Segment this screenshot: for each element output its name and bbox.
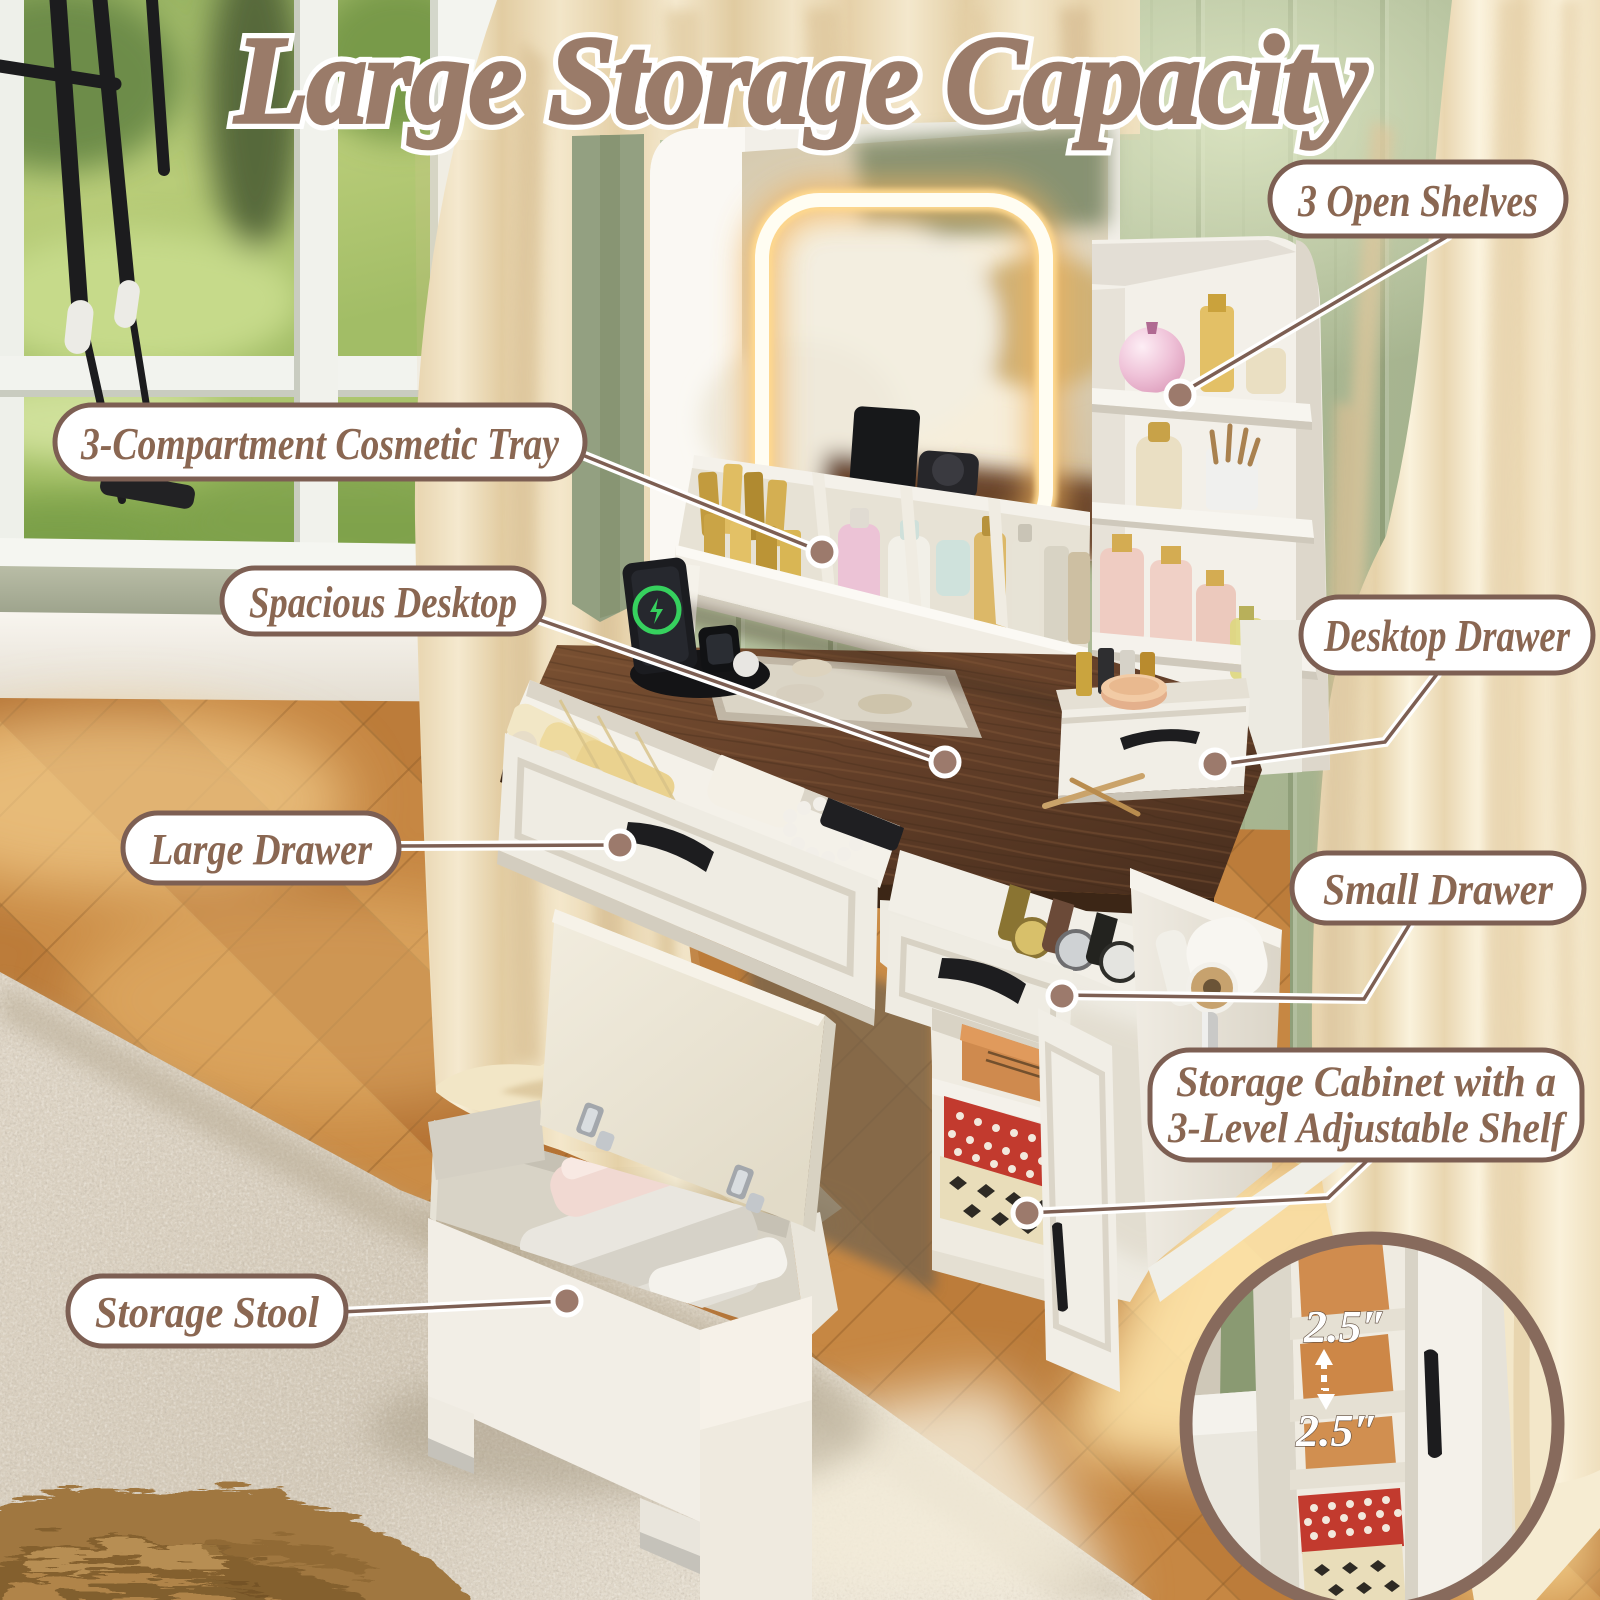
svg-text:3-Compartment Cosmetic Tray: 3-Compartment Cosmetic Tray <box>80 418 559 469</box>
svg-text:3 Open Shelves: 3 Open Shelves <box>1297 175 1538 226</box>
svg-text:Large Drawer: Large Drawer <box>149 825 373 874</box>
svg-text:Small Drawer: Small Drawer <box>1323 865 1554 914</box>
svg-text:Large Storage Capacity: Large Storage Capacity <box>234 12 1367 150</box>
svg-text:Storage Cabinet with a: Storage Cabinet with a <box>1176 1059 1556 1106</box>
svg-text:2.5″: 2.5″ <box>1295 1405 1379 1456</box>
svg-text:Spacious Desktop: Spacious Desktop <box>249 578 517 627</box>
svg-text:Storage Stool: Storage Stool <box>95 1288 320 1337</box>
svg-text:3-Level Adjustable Shelf: 3-Level Adjustable Shelf <box>1167 1105 1567 1152</box>
svg-text:2.5″: 2.5″ <box>1303 1301 1387 1352</box>
svg-text:Desktop Drawer: Desktop Drawer <box>1323 610 1571 661</box>
